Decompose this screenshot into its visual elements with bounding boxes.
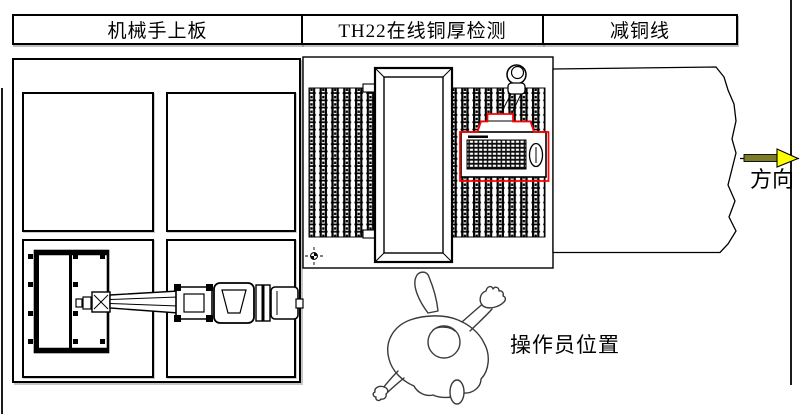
- cad-line-art: [0, 0, 800, 414]
- copper-reduction-area: [553, 67, 736, 253]
- robot-arm: [76, 283, 303, 323]
- direction-label: 方向: [750, 162, 794, 194]
- gantry-frame: [363, 68, 452, 262]
- datum-mark-icon: [305, 247, 323, 265]
- th22-station: [303, 57, 553, 268]
- gauge-keyboard: [467, 140, 526, 169]
- operator-figure: [373, 272, 505, 404]
- operator-position-label: 操作员位置: [510, 329, 620, 359]
- drawing-sheet: 机械手上板 TH22在线铜厚检测 减铜线: [0, 0, 800, 414]
